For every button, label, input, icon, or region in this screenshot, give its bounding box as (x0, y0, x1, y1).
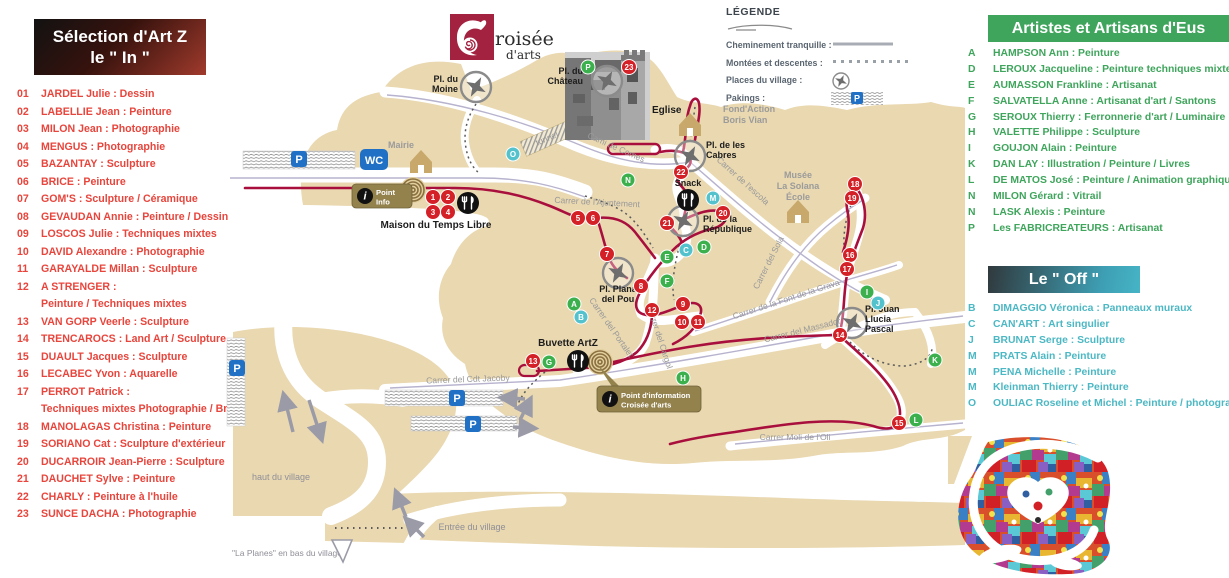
parking-area (411, 416, 517, 431)
list-item: MPRATS Alain : Peinture (960, 351, 1229, 367)
artist-entry: BRUNAT Serge : Sculpture (993, 335, 1125, 346)
in-artist-marker-19: 19 (845, 191, 860, 206)
direction-label: "La Planes" en bas du village (232, 548, 342, 558)
svg-text:21: 21 (663, 219, 672, 228)
svg-text:N: N (625, 176, 631, 185)
svg-text:23: 23 (625, 63, 634, 72)
list-item: 16LECABEC Yvon : Aquarelle (0, 368, 230, 386)
artwork-spiral-face (948, 436, 1126, 578)
svg-text:14: 14 (836, 331, 845, 340)
legend-dots-swatch (831, 54, 911, 70)
item-number: 19 (17, 438, 29, 450)
artist-entry: A STRENGER : (41, 281, 117, 293)
list-item: 10DAVID Alexandre : Photographie (0, 246, 230, 264)
list-item: 20DUCARROIR Jean-Pierre : Sculpture (0, 456, 230, 474)
off-artist-marker-B: B (574, 310, 588, 324)
artist-entry: SALVATELLA Anne : Artisanat d'art / Sant… (993, 96, 1216, 107)
eus-artist-marker-E: E (660, 250, 674, 264)
in-artist-marker-12: 12 (645, 303, 660, 318)
building-label: La Solana (777, 181, 821, 191)
legend-line-swatch (831, 36, 897, 52)
svg-text:B: B (578, 313, 584, 322)
svg-text:17: 17 (843, 265, 852, 274)
off-artist-marker-O: O (506, 147, 520, 161)
artist-entry: DIMAGGIO Véronica : Panneaux muraux (993, 303, 1192, 314)
artist-entry: GOM'S : Sculpture / Céramique (41, 193, 198, 205)
in-artist-marker-11: 11 (691, 315, 706, 330)
item-letter: I (968, 143, 971, 154)
list-item: 17PERROT Patrick : (0, 386, 230, 404)
list-item: GSEROUX Thierry : Ferronnerie d'art / Lu… (960, 112, 1229, 128)
artist-entry: CHARLY : Peinture à l'huile (41, 491, 178, 503)
svg-text:4: 4 (446, 208, 451, 217)
parking-icon: P (291, 151, 307, 167)
artist-entry: LEROUX Jacqueline : Peinture techniques … (993, 64, 1229, 75)
artist-entry: SUNCE DACHA : Photographie (41, 508, 197, 520)
legend-label: Places du village : (726, 75, 802, 85)
svg-text:P: P (453, 393, 460, 405)
list-item: 12A STRENGER : (0, 281, 230, 299)
place-label: Pl. du (434, 74, 459, 84)
direction-label: haut du village (252, 472, 310, 482)
list-item: MPENA Michelle : Peinture (960, 367, 1229, 383)
item-number: 09 (17, 228, 29, 240)
artist-entry: MILON Jean : Photographie (41, 123, 180, 135)
in-selection-panel: Sélection d'Art Z le " In " 01JARDEL Jul… (0, 0, 230, 578)
place-label: Pl. de les (706, 140, 745, 150)
artist-entry: MENGUS : Photographie (41, 141, 165, 153)
svg-text:I: I (866, 288, 868, 297)
list-item: 19SORIANO Cat : Sculpture d'extérieur (0, 438, 230, 456)
list-item: JBRUNAT Serge : Sculpture (960, 335, 1229, 351)
svg-text:H: H (680, 374, 686, 383)
item-letter: F (968, 96, 974, 107)
item-number: 10 (17, 246, 29, 258)
in-artist-marker-2: 2 (441, 190, 456, 205)
svg-text:15: 15 (895, 419, 904, 428)
in-artist-marker-3: 3 (426, 205, 441, 220)
in-artist-marker-9: 9 (676, 297, 691, 312)
svg-text:7: 7 (605, 250, 610, 259)
place-label: Llucia (865, 314, 892, 324)
svg-text:P: P (585, 63, 591, 72)
place-label: Pascal (865, 324, 894, 334)
list-item: 04MENGUS : Photographie (0, 141, 230, 159)
item-number: 17 (17, 386, 29, 398)
place-label: Pl. du (559, 66, 584, 76)
svg-text:9: 9 (681, 300, 686, 309)
svg-text:P: P (233, 363, 240, 375)
item-number: 02 (17, 106, 29, 118)
in-artist-marker-23: 23 (622, 60, 637, 75)
item-number: 12 (17, 281, 29, 293)
list-item: 18MANOLAGAS Christina : Peinture (0, 421, 230, 439)
artist-entry: LECABEC Yvon : Aquarelle (41, 368, 178, 380)
legend-parking-swatch: P (831, 89, 887, 109)
in-artist-marker-4: 4 (441, 205, 456, 220)
in-artist-marker-10: 10 (675, 315, 690, 330)
croisee-darts-logo: roisée d'arts (450, 12, 570, 64)
list-item: KDAN LAY : Illustration / Peinture / Liv… (960, 159, 1229, 175)
list-item: NLASK Alexis : Peinture (960, 207, 1229, 223)
in-selection-title: Sélection d'Art Z le " In " (34, 19, 206, 75)
legend-label: Cheminement tranquille : (726, 40, 832, 50)
eus-artist-list: AHAMPSON Ann : PeintureDLEROUX Jacquelin… (960, 48, 1229, 239)
list-item: 08GEVAUDAN Annie : Peinture / Dessin (0, 211, 230, 229)
artist-entry: AUMASSON Frankline : Artisanat (993, 80, 1157, 91)
item-letter: M (968, 367, 977, 378)
item-number: 16 (17, 368, 29, 380)
svg-text:1: 1 (431, 193, 436, 202)
artist-entry: VALETTE Philippe : Sculpture (993, 127, 1140, 138)
village-square-compass-icon (461, 72, 491, 102)
eus-artist-marker-F: F (660, 274, 674, 288)
artist-entry: Les FABRICREATEURS : Artisanat (993, 223, 1163, 234)
svg-text:C: C (683, 246, 689, 255)
place-label: Château (547, 76, 583, 86)
off-title: Le " Off " (988, 266, 1140, 293)
svg-text:D: D (701, 243, 707, 252)
svg-text:2: 2 (446, 193, 451, 202)
eus-artist-marker-D: D (697, 240, 711, 254)
eus-artist-marker-A: A (567, 297, 581, 311)
info-point-label: Info (376, 198, 390, 207)
artist-entry: MILON Gérard : Vitrail (993, 191, 1101, 202)
list-item: NMILON Gérard : Vitrail (960, 191, 1229, 207)
svg-text:13: 13 (529, 357, 538, 366)
item-letter: B (968, 303, 976, 314)
item-letter: A (968, 48, 976, 59)
list-item: DLEROUX Jacqueline : Peinture techniques… (960, 64, 1229, 80)
item-letter: O (968, 398, 976, 409)
list-item: 22CHARLY : Peinture à l'huile (0, 491, 230, 509)
in-artist-marker-1: 1 (426, 190, 441, 205)
artist-entry: DAVID Alexandre : Photographie (41, 246, 205, 258)
item-number: 05 (17, 158, 29, 170)
list-item: 09LOSCOS Julie : Techniques mixtes (0, 228, 230, 246)
place-label: del Pou (602, 294, 635, 304)
legend: LÉGENDE Cheminement tranquille :Montées … (726, 6, 906, 106)
list-item: 21DAUCHET Sylve : Peinture (0, 473, 230, 491)
svg-text:A: A (571, 300, 577, 309)
legend-label: Montées et descentes : (726, 58, 823, 68)
off-artist-marker-C: C (679, 243, 693, 257)
spiral-icon (587, 349, 613, 375)
place-label: Cabres (706, 150, 737, 160)
off-artist-list: BDIMAGGIO Véronica : Panneaux murauxCCAN… (960, 303, 1229, 414)
svg-text:16: 16 (846, 251, 855, 260)
parking-icon: P (465, 416, 481, 432)
artist-entry: SEROUX Thierry : Ferronnerie d'art / Lum… (993, 112, 1225, 123)
svg-text:8: 8 (639, 282, 644, 291)
logo-text-bottom: d'arts (506, 48, 541, 62)
off-artist-marker-J: J (871, 296, 885, 310)
place-label: Moine (432, 84, 458, 94)
artist-entry: CAN'ART : Art singulier (993, 319, 1109, 330)
in-artist-marker-13: 13 (526, 354, 541, 369)
eus-artist-marker-H: H (676, 371, 690, 385)
item-number: 06 (17, 176, 29, 188)
in-artist-marker-8: 8 (634, 279, 649, 294)
parking-area (227, 338, 245, 426)
item-number: 07 (17, 193, 29, 205)
svg-text:22: 22 (677, 168, 686, 177)
item-letter: D (968, 64, 976, 75)
item-letter: K (968, 159, 976, 170)
restaurant-icon (457, 192, 479, 214)
info-point-label: Point d'information (621, 391, 691, 400)
list-item: MKleinman Thierry : Peinture (960, 382, 1229, 398)
artist-entry: SORIANO Cat : Sculpture d'extérieur (41, 438, 225, 450)
artist-entry: HAMPSON Ann : Peinture (993, 48, 1120, 59)
item-number: 23 (17, 508, 29, 520)
item-number: 18 (17, 421, 29, 433)
item-number: 14 (17, 333, 29, 345)
artist-entry: TRENCAROCS : Land Art / Sculpture (41, 333, 226, 345)
svg-text:J: J (876, 299, 880, 308)
list-item: 11GARAYALDE Millan : Sculpture (0, 263, 230, 281)
item-number: 11 (17, 263, 28, 275)
artist-entry: DUCARROIR Jean-Pierre : Sculpture (41, 456, 225, 468)
item-number: 01 (17, 88, 29, 100)
legend-item: Montées et descentes : (726, 54, 906, 72)
svg-text:19: 19 (848, 194, 857, 203)
parking-icon: P (229, 360, 245, 376)
item-letter: M (968, 382, 977, 393)
item-letter: E (968, 80, 975, 91)
artist-entry: GEVAUDAN Annie : Peinture / Dessin (41, 211, 228, 223)
list-item: Peinture / Techniques mixtes (0, 298, 230, 316)
building-label: École (786, 192, 810, 202)
building-label: Boris Vian (723, 115, 767, 125)
list-item: EAUMASSON Frankline : Artisanat (960, 80, 1229, 96)
svg-text:E: E (664, 253, 670, 262)
list-item: Techniques mixtes Photographie / Broderi… (0, 403, 230, 421)
svg-text:F: F (665, 277, 670, 286)
artist-entry: LASK Alexis : Peinture (993, 207, 1105, 218)
parking-icon: P (449, 390, 465, 406)
place-label: Buvette ArtZ (538, 338, 598, 349)
list-item: OOULIAC Roseline et Michel : Peinture / … (960, 398, 1229, 414)
legend-item: Cheminement tranquille : (726, 36, 906, 54)
svg-text:3: 3 (431, 208, 436, 217)
eus-title: Artistes et Artisans d'Eus (988, 15, 1229, 42)
event-map-page: Sélection d'Art Z le " In " 01JARDEL Jul… (0, 0, 1229, 578)
legend-item: Pakings :P (726, 89, 906, 107)
item-number: 15 (17, 351, 29, 363)
svg-text:10: 10 (678, 318, 687, 327)
street-label: Carrer Moli de l'Oli (760, 432, 831, 442)
artist-entry: LABELLIE Jean : Peinture (41, 106, 172, 118)
place-label: Pl. Plana (599, 284, 638, 294)
direction-arrow (513, 427, 529, 428)
off-artist-marker-M: M (706, 191, 720, 205)
svg-text:P: P (295, 154, 302, 166)
item-letter: P (968, 223, 975, 234)
svg-text:6: 6 (591, 214, 596, 223)
artist-entry: PERROT Patrick : (41, 386, 130, 398)
list-item: 03MILON Jean : Photographie (0, 123, 230, 141)
item-number: 08 (17, 211, 29, 223)
svg-text:O: O (510, 150, 516, 159)
list-item: BDIMAGGIO Véronica : Panneaux muraux (960, 303, 1229, 319)
item-letter: N (968, 191, 976, 202)
artist-entry: GOUJON Alain : Peinture (993, 143, 1117, 154)
artist-entry: DUAULT Jacques : Sculpture (41, 351, 187, 363)
item-letter: N (968, 207, 976, 218)
place-label: République (703, 224, 752, 234)
eus-artist-marker-P: P (581, 60, 595, 74)
list-item: 23SUNCE DACHA : Photographie (0, 508, 230, 526)
artist-entry: GARAYALDE Millan : Sculpture (41, 263, 197, 275)
svg-text:18: 18 (851, 180, 860, 189)
place-label: Eglise (652, 105, 682, 116)
artist-entry: LOSCOS Julie : Techniques mixtes (41, 228, 217, 240)
svg-text:K: K (932, 356, 938, 365)
eus-artist-marker-L: L (909, 413, 923, 427)
svg-text:L: L (914, 416, 919, 425)
in-artist-marker-22: 22 (674, 165, 689, 180)
direction-arrow (507, 398, 525, 399)
item-letter: H (968, 127, 976, 138)
logo-square (450, 14, 494, 60)
village-square-compass-icon (592, 66, 622, 96)
list-item: 01JARDEL Julie : Dessin (0, 88, 230, 106)
parking-area (385, 390, 503, 406)
list-item: CCAN'ART : Art singulier (960, 319, 1229, 335)
in-title-line1: Sélection d'Art Z (34, 26, 206, 47)
artist-entry: Kleinman Thierry : Peinture (993, 382, 1129, 393)
in-artist-marker-21: 21 (660, 216, 675, 231)
item-number: 20 (17, 456, 29, 468)
artist-entry-continued: Peinture / Techniques mixtes (41, 298, 187, 310)
list-item: 14TRENCAROCS : Land Art / Sculpture (0, 333, 230, 351)
svg-text:12: 12 (648, 306, 657, 315)
direction-label: Entrée du village (438, 522, 505, 532)
list-item: 07GOM'S : Sculpture / Céramique (0, 193, 230, 211)
legend-item: Places du village : (726, 71, 906, 89)
wc-icon: WC (360, 149, 388, 170)
item-number: 22 (17, 491, 29, 503)
in-artist-marker-15: 15 (892, 416, 907, 431)
item-letter: M (968, 351, 977, 362)
in-artist-marker-5: 5 (571, 211, 586, 226)
artist-entry: VAN GORP Veerle : Sculpture (41, 316, 189, 328)
eus-artist-marker-I: I (860, 285, 874, 299)
in-artist-list: 01JARDEL Julie : Dessin02LABELLIE Jean :… (0, 88, 230, 526)
item-letter: J (968, 335, 974, 346)
svg-text:P: P (854, 93, 860, 103)
artist-entry: DE MATOS José : Peinture / Animation gra… (993, 175, 1229, 186)
artist-entry: BRICE : Peinture (41, 176, 126, 188)
in-artist-marker-16: 16 (843, 248, 858, 263)
in-artist-marker-14: 14 (833, 328, 848, 343)
building-label: Mairie (388, 140, 414, 150)
in-artist-marker-6: 6 (586, 211, 601, 226)
item-number: 03 (17, 123, 29, 135)
item-number: 04 (17, 141, 29, 153)
in-artist-marker-17: 17 (840, 262, 855, 277)
in-artist-marker-7: 7 (600, 247, 615, 262)
artist-entry: DAN LAY : Illustration / Peinture / Livr… (993, 159, 1190, 170)
artist-entry: MANOLAGAS Christina : Peinture (41, 421, 211, 433)
legend-title: LÉGENDE (726, 6, 906, 18)
list-item: FSALVATELLA Anne : Artisanat d'art / San… (960, 96, 1229, 112)
list-item: 05BAZANTAY : Sculpture (0, 158, 230, 176)
svg-text:WC: WC (365, 155, 383, 167)
eus-artist-marker-G: G (542, 355, 556, 369)
list-item: IGOUJON Alain : Peinture (960, 143, 1229, 159)
logo-text-top: roisée (495, 28, 554, 50)
artist-entry: PRATS Alain : Peinture (993, 351, 1106, 362)
item-letter: C (968, 319, 976, 330)
item-letter: G (968, 112, 976, 123)
in-artist-marker-20: 20 (716, 206, 731, 221)
info-point-badge: iPointInfo (352, 184, 412, 208)
artist-entry: OULIAC Roseline et Michel : Peinture / p… (993, 398, 1229, 409)
svg-text:11: 11 (694, 318, 703, 327)
info-point-label: Point (376, 188, 395, 197)
item-letter: L (968, 175, 974, 186)
list-item: 06BRICE : Peinture (0, 176, 230, 194)
list-item: AHAMPSON Ann : Peinture (960, 48, 1229, 64)
eus-artist-marker-K: K (928, 353, 942, 367)
legend-swoosh (726, 23, 796, 31)
list-item: 02LABELLIE Jean : Peinture (0, 106, 230, 124)
restaurant-icon (677, 189, 699, 211)
svg-text:P: P (469, 419, 476, 431)
svg-text:G: G (546, 358, 552, 367)
artist-entry: PENA Michelle : Peinture (993, 367, 1116, 378)
item-number: 13 (17, 316, 29, 328)
list-item: 15DUAULT Jacques : Sculpture (0, 351, 230, 369)
list-item: PLes FABRICREATEURS : Artisanat (960, 223, 1229, 239)
place-label: Maison du Temps Libre (381, 220, 492, 231)
in-artist-marker-18: 18 (848, 177, 863, 192)
list-item: LDE MATOS José : Peinture / Animation gr… (960, 175, 1229, 191)
svg-text:5: 5 (576, 214, 581, 223)
restaurant-icon (567, 350, 589, 372)
building-label: Musée (784, 170, 812, 180)
in-title-line2: le " In " (34, 47, 206, 68)
item-number: 21 (17, 473, 29, 485)
artist-entry: BAZANTAY : Sculpture (41, 158, 156, 170)
artist-entry: DAUCHET Sylve : Peinture (41, 473, 175, 485)
list-item: HVALETTE Philippe : Sculpture (960, 127, 1229, 143)
legend-label: Pakings : (726, 93, 765, 103)
info-point-label: Croisée d'arts (621, 401, 671, 410)
artist-entry: JARDEL Julie : Dessin (41, 88, 154, 100)
svg-text:20: 20 (719, 209, 728, 218)
svg-text:M: M (710, 194, 717, 203)
eus-artist-marker-N: N (621, 173, 635, 187)
list-item: 13VAN GORP Veerle : Sculpture (0, 316, 230, 334)
